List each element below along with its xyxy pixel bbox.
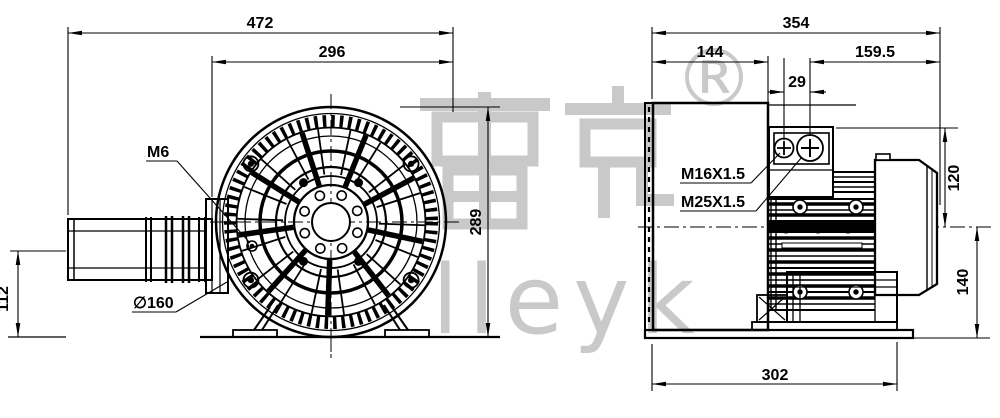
- terminal-box: [769, 127, 833, 197]
- dim-label-120: 120: [946, 165, 963, 192]
- motor-end-cap: [875, 154, 937, 295]
- dim-label-140: 140: [955, 269, 972, 296]
- dim-label-144: 144: [697, 44, 724, 61]
- gland-label-m25: M25X1.5: [681, 194, 745, 211]
- front-feet: [8, 305, 500, 357]
- inlet-muffler: [68, 199, 228, 293]
- dim-159-5: 159.5: [810, 44, 940, 62]
- diameter-label-160: ∅160: [133, 295, 174, 312]
- dim-label-29: 29: [788, 74, 806, 91]
- gland-label-m16: M16X1.5: [681, 166, 745, 183]
- dim-label-296: 296: [319, 44, 346, 61]
- technical-drawing-page: lleyk ®: [0, 0, 1000, 418]
- watermark-cjk-lei: [420, 92, 550, 224]
- blower-dimension-drawing: lleyk ®: [0, 0, 1000, 418]
- dim-label-289: 289: [468, 209, 485, 236]
- dim-label-112: 112: [0, 286, 12, 312]
- front-view: 472 296 289 112 M6: [0, 15, 500, 358]
- dim-label-159-5: 159.5: [855, 44, 895, 61]
- dim-112: 112: [0, 251, 66, 337]
- motor-body: [768, 172, 875, 310]
- dim-label-472: 472: [247, 15, 274, 32]
- thread-label-m6: M6: [147, 144, 169, 161]
- watermark-cjk-ke: [565, 86, 674, 218]
- dim-label-354: 354: [783, 15, 810, 32]
- label-d160: ∅160: [132, 282, 227, 312]
- watermark-latin: lleyk: [432, 246, 704, 356]
- label-m16: M16X1.5: [680, 153, 780, 183]
- dim-label-302: 302: [762, 367, 789, 384]
